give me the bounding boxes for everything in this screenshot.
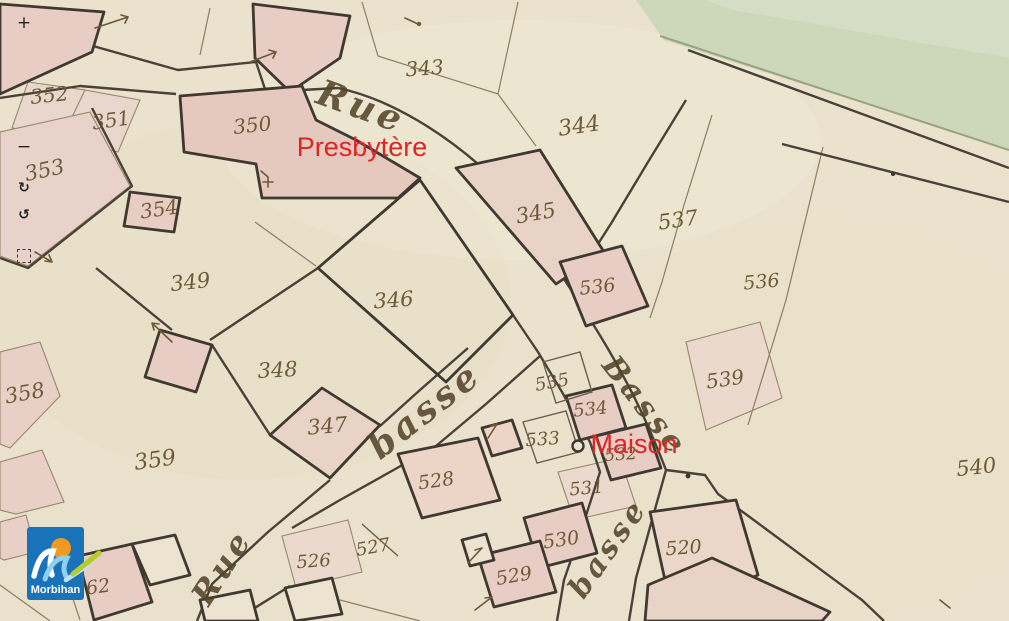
parcel-label: 347: [306, 412, 349, 439]
rotate-counterclockwise-icon[interactable]: ↺: [13, 205, 35, 225]
parcel-label: 348: [257, 357, 298, 383]
parcel-label: 536: [742, 269, 780, 294]
parcel-label: 343: [405, 55, 445, 82]
select-area-icon[interactable]: [13, 246, 35, 266]
parcel-label: 346: [373, 287, 415, 314]
parcel-label: 533: [525, 428, 561, 451]
map-annotation: Maison: [590, 429, 677, 459]
morbihan-logo: Morbihan: [21, 522, 111, 606]
parcel-label: 540: [955, 453, 997, 481]
zoom-out-icon[interactable]: −: [13, 137, 35, 157]
parcel-label: 352: [29, 81, 69, 109]
parcel-label: 526: [296, 550, 332, 573]
map-canvas[interactable]: 3433523513503443533543455373495365363463…: [0, 0, 1009, 621]
zoom-in-icon[interactable]: +: [13, 13, 35, 33]
parcel-label: 531: [568, 477, 604, 501]
parcel-label: 349: [169, 268, 211, 296]
parcel-label: 527: [354, 534, 392, 561]
parcel-label: 520: [665, 536, 703, 560]
parcel-label: 536: [578, 274, 616, 300]
parcel-label: 534: [572, 397, 608, 421]
rotate-clockwise-icon[interactable]: ↻: [13, 178, 35, 198]
select-area-box: [17, 249, 31, 263]
map-annotation: Presbytère: [297, 132, 428, 162]
parcel-label: 350: [232, 111, 273, 139]
logo-wordmark: Morbihan: [31, 584, 81, 596]
paper-texture: [0, 20, 1009, 621]
map-viewer: 3433523513503443533543455373495365363463…: [0, 0, 1009, 621]
